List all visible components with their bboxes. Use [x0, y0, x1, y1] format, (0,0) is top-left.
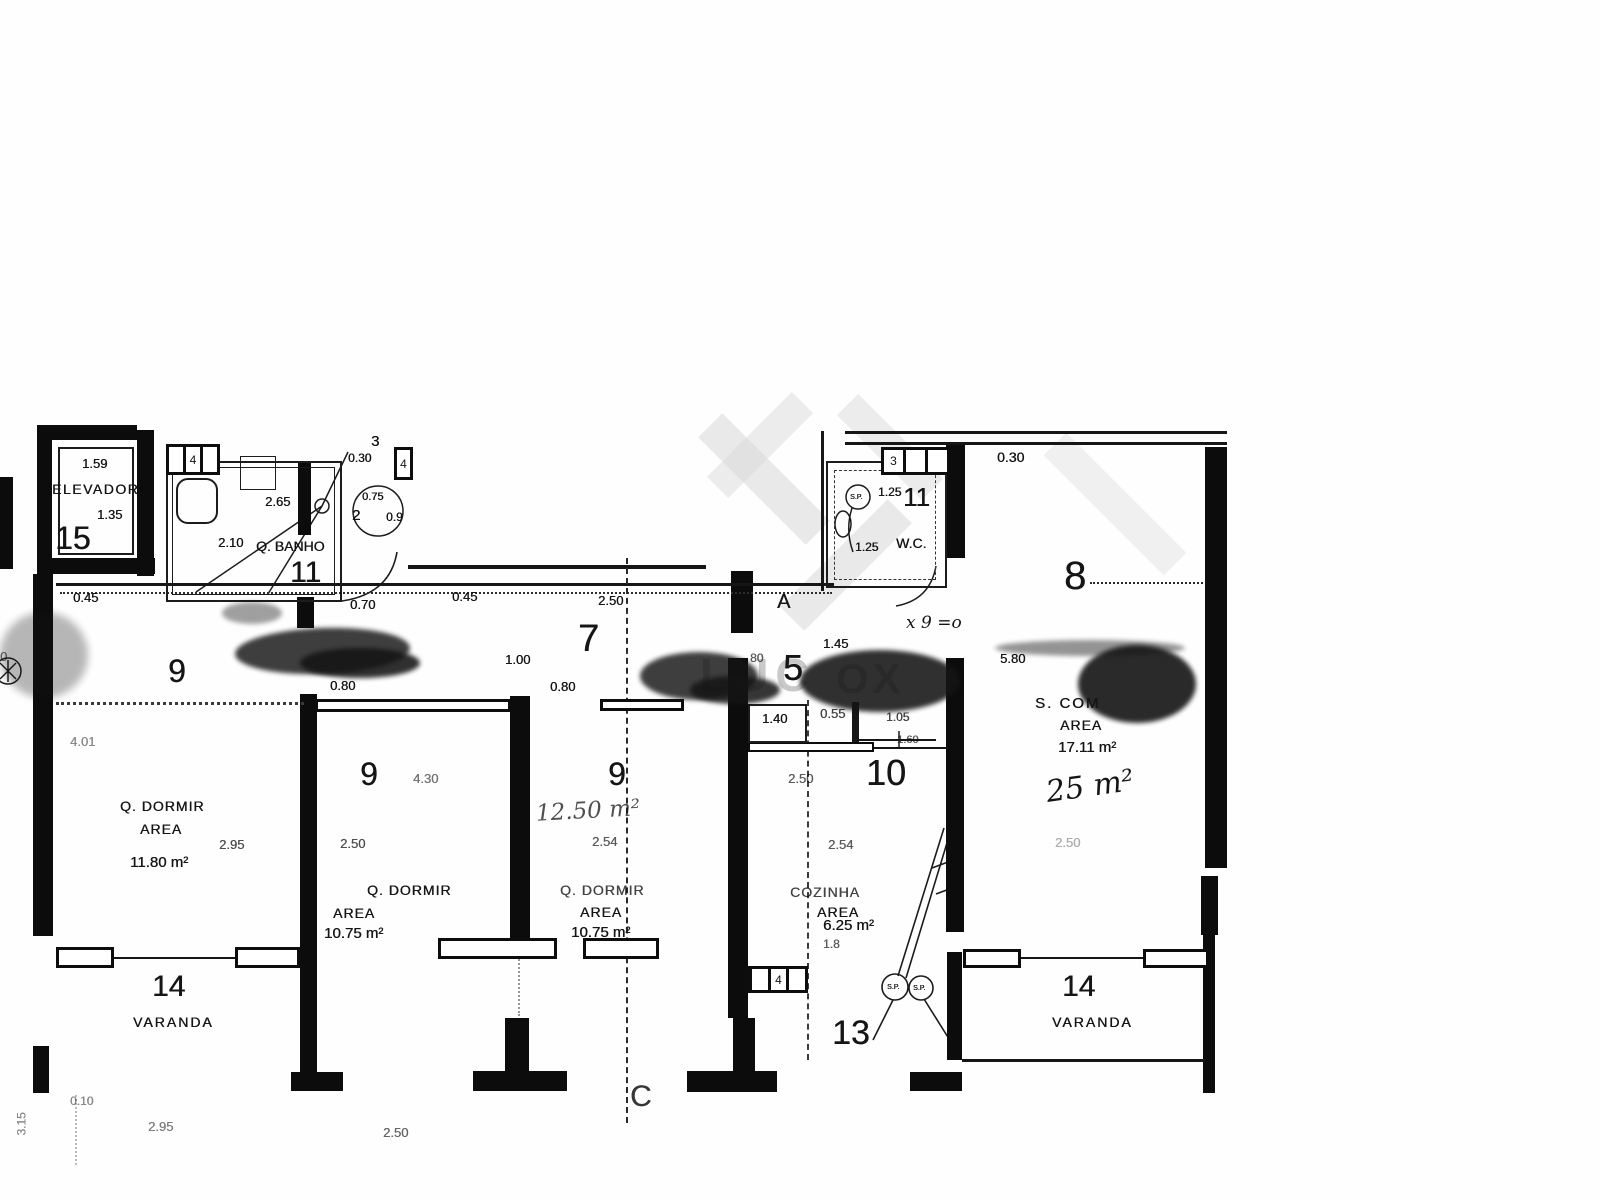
room-number-11: 11 — [290, 558, 321, 588]
dim: 0.9 — [386, 511, 403, 523]
area-label: AREA — [1060, 718, 1102, 732]
dim: 0.55 — [820, 707, 845, 720]
dim: 1.05 — [886, 711, 909, 723]
kitchen-counter — [748, 742, 874, 752]
dim: 2.50 — [383, 1126, 408, 1139]
window-sill-a — [56, 947, 114, 968]
wall-bedroom1-2-foot — [291, 1072, 343, 1091]
dim: 2.65 — [265, 495, 290, 508]
wall-living-left-lower — [947, 952, 962, 1060]
wall-elevator-top — [37, 425, 137, 440]
ink-smudge — [690, 676, 780, 704]
dim: 0.45 — [452, 590, 477, 603]
dim: 0.75 — [362, 492, 383, 503]
dim: 1.25 — [878, 486, 901, 498]
dim: 2 — [352, 508, 360, 523]
window-tag-box-wc: 3 — [881, 447, 950, 475]
room-number-9: 9 — [168, 655, 186, 687]
entry-label-a: A — [777, 592, 790, 612]
wc-wall-left — [821, 431, 824, 591]
wall-living-left-foot — [910, 1072, 962, 1091]
varanda-right-rail — [1020, 957, 1143, 959]
area-label: AREA — [140, 822, 182, 836]
section-line-c — [626, 558, 628, 1123]
dim: 2.10 — [218, 536, 243, 549]
top-wall-outer — [845, 431, 1227, 434]
pillar-stem-b3 — [733, 1018, 755, 1072]
window-tag-box-bathroom: 4 — [166, 444, 220, 475]
dim: 2.95 — [148, 1120, 173, 1133]
window-tag-box-kitchen: 4 — [744, 966, 808, 993]
kitchen-pipes — [873, 828, 956, 1050]
area-label: AREA — [333, 906, 375, 920]
dim: 4.01 — [70, 735, 95, 748]
wall-bedroom1-2 — [300, 694, 317, 1074]
room-name-varanda-left: VARANDA — [133, 1015, 214, 1029]
room-name-scom: S. COM — [1035, 696, 1100, 711]
bathtub — [176, 478, 218, 524]
room-number-13: 13 — [832, 1016, 870, 1050]
room-number-8: 8 — [1064, 556, 1086, 596]
wall-right-outer-mid — [1201, 876, 1218, 935]
dim: 0.70 — [350, 598, 375, 611]
tag: 3 — [371, 434, 379, 449]
wall-elevator-left — [37, 425, 52, 575]
room-number-11-wc: 11 — [903, 484, 930, 510]
area-value: 10.75 m² — [324, 926, 383, 941]
corridor-wall-top — [408, 565, 706, 569]
lintel-bedroom3 — [600, 699, 684, 711]
parapet-right-a — [963, 949, 1021, 968]
wall-bedroom3-kitchen — [728, 658, 748, 1018]
window-sill-d — [583, 938, 659, 959]
sp-label: S.P. — [913, 985, 925, 992]
dim: 2.95 — [219, 838, 244, 851]
pillar-base-b2 — [473, 1071, 567, 1091]
wall-entry-stub — [731, 571, 753, 633]
dim: 2.54 — [828, 838, 853, 851]
window-sill-c — [438, 938, 557, 959]
lintel-bedroom2 — [315, 699, 511, 712]
wall-left-bottom — [33, 1046, 49, 1093]
dim: 0.30 — [997, 450, 1024, 464]
varanda-right-floor — [962, 1059, 1205, 1062]
kitchen-counter-line — [872, 747, 948, 749]
window-tag-box-bathroom-right: 4 — [394, 447, 413, 480]
area-value: 10.75 m² — [571, 925, 630, 940]
area-label: AREA — [580, 905, 622, 919]
room-name-banho: Q. BANHO — [256, 539, 324, 553]
room-name-dormir: Q. DORMIR — [120, 799, 204, 813]
dim: 1.00 — [505, 653, 530, 666]
room-number-7: 7 — [578, 620, 599, 658]
dim: 4.30 — [413, 772, 438, 785]
area-value: 6.25 m² — [823, 918, 874, 933]
dim: 80 — [750, 652, 763, 664]
dim: 1.45 — [823, 637, 848, 650]
room-name-dormir: Q. DORMIR — [367, 883, 451, 897]
dim: 1.60 — [897, 735, 918, 746]
top-wall-inner — [845, 442, 1227, 445]
sp-label: S.P. — [887, 984, 899, 991]
wall-living-left-upper — [946, 658, 964, 932]
dim: 3.15 — [16, 1112, 28, 1135]
dim: 1.40 — [762, 712, 787, 725]
room-number-9: 9 — [608, 758, 626, 790]
dim: 0.30 — [348, 452, 371, 464]
handwritten-area: 12.50 m² — [535, 797, 640, 825]
window-tag: 4 — [190, 453, 197, 467]
room-name-wc: W.C. — [896, 536, 926, 550]
dim-edge: 0 — [0, 650, 7, 663]
parapet-right-b — [1143, 949, 1209, 968]
dim: 2.54 — [592, 835, 617, 848]
dim: 0.80 — [550, 680, 575, 693]
window-tag: 4 — [775, 973, 782, 987]
room-name-elevador: ELEVADOR — [52, 482, 139, 496]
sp-label: S.P. — [850, 494, 862, 501]
window-sill-b — [235, 947, 300, 968]
dim: 2.50 — [598, 594, 623, 607]
area-value: 17.11 m² — [1058, 740, 1116, 755]
section-label-c: C — [630, 1082, 652, 1112]
bathroom-fixture — [240, 456, 276, 490]
pillar-base-b3 — [687, 1071, 777, 1092]
wall-bedroom2-3 — [510, 696, 530, 950]
room-name-varanda-right: VARANDA — [1052, 1015, 1133, 1029]
room-number-14-left: 14 — [152, 972, 185, 1002]
room-number-9: 9 — [360, 758, 378, 790]
ink-smudge — [222, 602, 282, 624]
wall-elevator-right — [137, 430, 154, 576]
handwritten-note: x 9 =o — [906, 615, 962, 632]
ink-smudge — [800, 650, 960, 712]
wall-left-edge-stub — [0, 477, 13, 569]
pillar-stem-b2 — [505, 1018, 529, 1073]
room-number-5: 5 — [783, 650, 803, 686]
wall-right-outer-upper — [1205, 447, 1227, 868]
varanda-left-rail — [113, 957, 235, 959]
window-tag: 3 — [890, 454, 897, 468]
living-leader-dotted — [1090, 582, 1203, 584]
dim: 1.35 — [97, 508, 122, 521]
room-number-10: 10 — [866, 755, 906, 791]
dim: 1.8 — [823, 938, 840, 950]
dim: 1.59 — [82, 457, 107, 470]
ink-smudge — [0, 612, 88, 698]
dim: 2.50 — [788, 772, 813, 785]
dim: 0.45 — [73, 591, 98, 604]
ink-smudge — [300, 648, 420, 678]
dim: 1.25 — [855, 541, 878, 553]
dim-faint: 2.50 — [1055, 836, 1080, 849]
dim: 0.10 — [70, 1095, 93, 1107]
dim: 2.50 — [340, 837, 365, 850]
floorplan-scan: LUC OX — [0, 0, 1600, 1200]
kitchen-dash-line — [807, 700, 809, 1060]
area-value: 11.80 m² — [130, 855, 188, 870]
room-name-dormir: Q. DORMIR — [560, 883, 644, 897]
dim: 5.80 — [1000, 652, 1025, 665]
window-tag: 4 — [400, 457, 407, 471]
room-name-cozinha: COZINHA — [790, 885, 860, 899]
pillar-gap-dotted — [518, 952, 520, 1016]
room-number-15: 15 — [55, 522, 91, 554]
room-number-14-right: 14 — [1062, 972, 1095, 1002]
bedroom1-partition-dotted — [56, 702, 304, 705]
dim: 0.80 — [330, 679, 355, 692]
